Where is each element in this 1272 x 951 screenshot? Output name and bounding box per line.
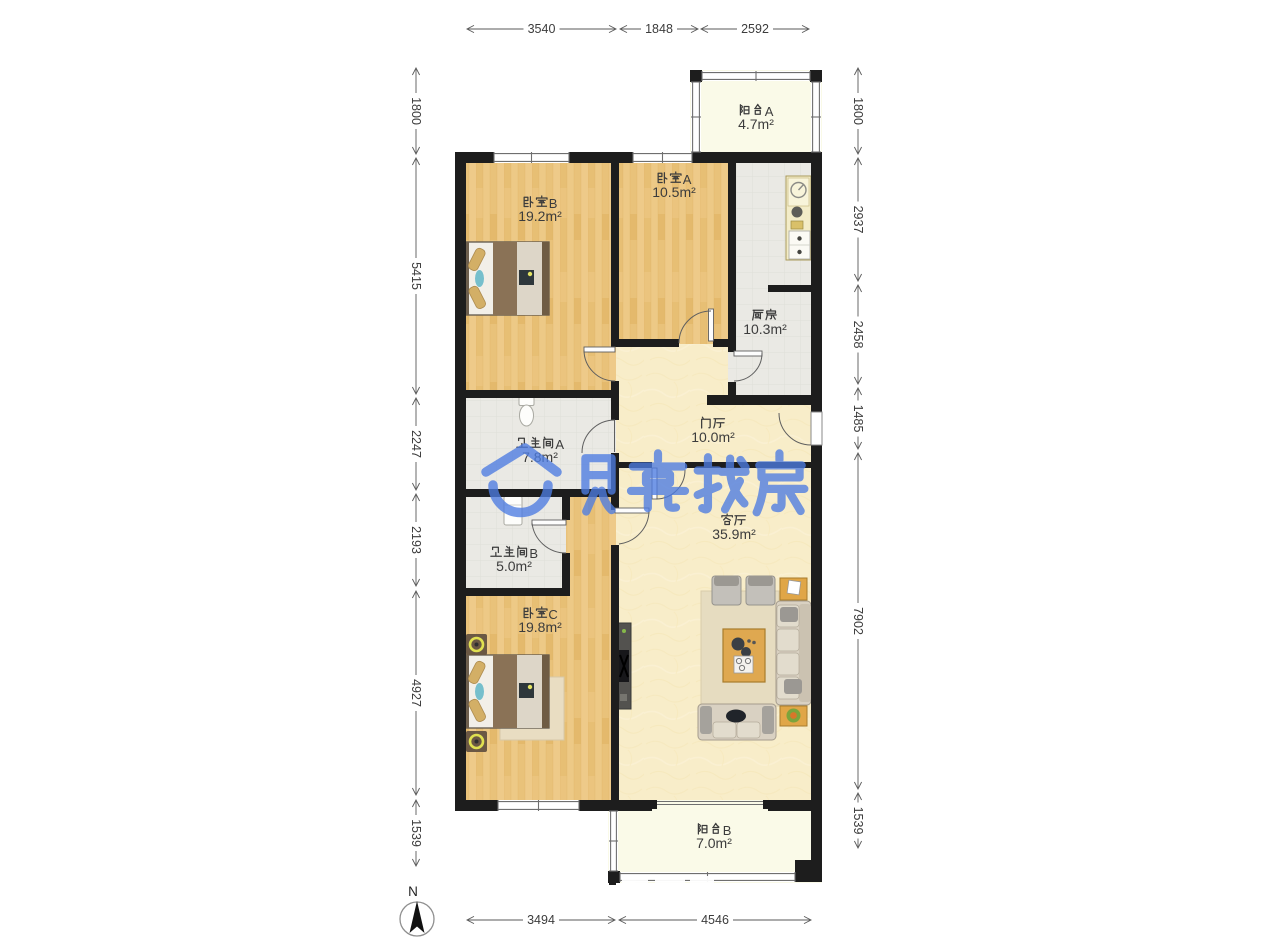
svg-text:2458: 2458 — [851, 321, 865, 349]
svg-text:1539: 1539 — [851, 807, 865, 835]
svg-text:4.7m²: 4.7m² — [738, 116, 774, 132]
svg-text:2193: 2193 — [409, 526, 423, 554]
svg-text:2937: 2937 — [851, 206, 865, 234]
svg-text:10.3m²: 10.3m² — [743, 321, 787, 337]
svg-text:7902: 7902 — [851, 607, 865, 635]
svg-text:3540: 3540 — [528, 22, 556, 36]
svg-text:4927: 4927 — [409, 679, 423, 707]
svg-text:N: N — [408, 884, 418, 899]
svg-text:1485: 1485 — [851, 405, 865, 433]
svg-text:1848: 1848 — [645, 22, 673, 36]
svg-text:5.0m²: 5.0m² — [496, 558, 532, 574]
svg-text:10.5m²: 10.5m² — [652, 184, 696, 200]
svg-text:19.8m²: 19.8m² — [518, 619, 562, 635]
svg-text:4546: 4546 — [701, 913, 729, 927]
svg-text:1800: 1800 — [851, 97, 865, 125]
svg-text:7.0m²: 7.0m² — [696, 835, 732, 851]
svg-text:3494: 3494 — [527, 913, 555, 927]
svg-text:1539: 1539 — [409, 819, 423, 847]
svg-text:10.0m²: 10.0m² — [691, 429, 735, 445]
svg-text:35.9m²: 35.9m² — [712, 526, 756, 542]
svg-text:2247: 2247 — [409, 430, 423, 458]
svg-text:1800: 1800 — [409, 97, 423, 125]
svg-text:5415: 5415 — [409, 262, 423, 290]
svg-text:2592: 2592 — [741, 22, 769, 36]
svg-text:19.2m²: 19.2m² — [518, 208, 562, 224]
